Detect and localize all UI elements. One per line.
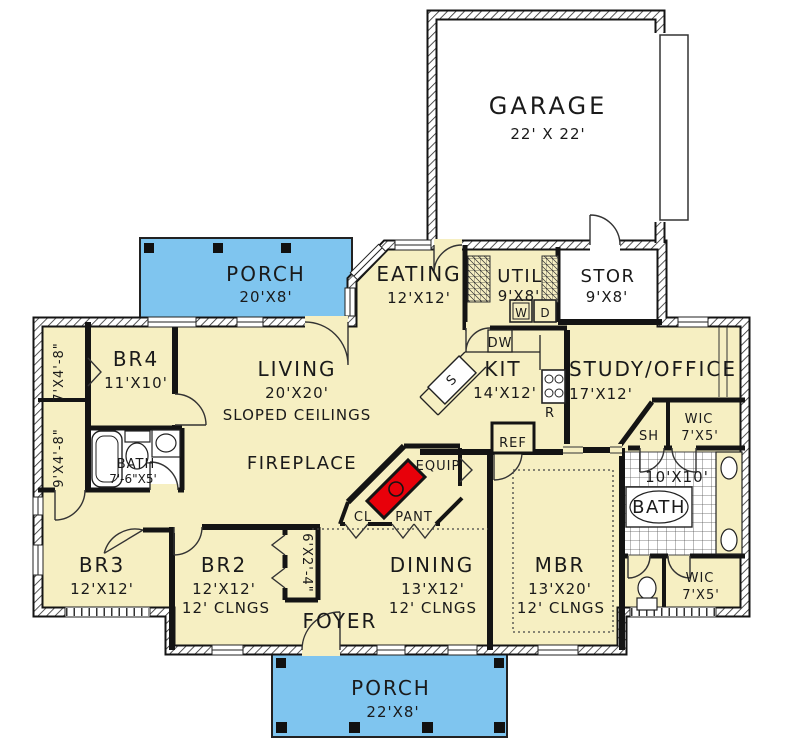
range-label: R xyxy=(545,406,555,421)
porch-post xyxy=(276,722,287,733)
room-dims-wic-upper: 7'X5' xyxy=(681,429,719,444)
sink xyxy=(721,529,737,551)
master-vanity xyxy=(716,452,742,554)
sink xyxy=(721,457,737,479)
porch-post xyxy=(422,722,433,733)
floor-plan: GARAGE 22' X 22' PORCH 20'X8' EATING 12'… xyxy=(0,0,800,754)
range xyxy=(542,370,565,403)
room-note-br2: 12' CLNGS xyxy=(182,599,270,617)
room-label-util: UTIL xyxy=(497,266,543,287)
closet-label: CL xyxy=(354,510,372,525)
room-label-kit: KIT xyxy=(484,357,521,381)
window xyxy=(237,317,263,327)
dryer-label: D xyxy=(540,306,549,320)
closet-br2-dims: 6'X2'-4" xyxy=(299,533,314,593)
closet-hall-upper-dims: 7'X4'-8" xyxy=(52,342,67,402)
equip-label: EQUIP xyxy=(416,459,461,474)
room-note-dining: 12' CLNGS xyxy=(389,599,477,617)
room-label-master-bath: BATH xyxy=(632,497,686,518)
util-shelves xyxy=(542,256,558,302)
washer-label: W xyxy=(515,306,527,320)
closet-hall-lower-dims: 9'X4'-8" xyxy=(52,428,67,488)
room-dims-dining: 13'X12' xyxy=(401,580,465,598)
toilet xyxy=(637,577,657,610)
window xyxy=(33,497,43,515)
room-label-stor: STOR xyxy=(580,266,635,287)
util-shelves xyxy=(468,256,490,302)
room-note-mbr: 12' CLNGS xyxy=(517,599,605,617)
room-label-hall-bath: BATH xyxy=(117,457,156,472)
room-dims-mbr: 13'X20' xyxy=(528,580,592,598)
room-label-study: STUDY/OFFICE xyxy=(569,357,737,381)
window xyxy=(678,317,708,327)
room-label-mbr: MBR xyxy=(535,553,586,577)
porch-post xyxy=(144,243,154,253)
garage-door xyxy=(652,33,688,222)
room-label-br3: BR3 xyxy=(79,553,125,577)
dishwasher-label: DW xyxy=(488,336,513,351)
room-label-br2: BR2 xyxy=(201,553,247,577)
room-dims-hall-bath: 7'-6"X5' xyxy=(109,472,157,486)
refrigerator-label: REF xyxy=(499,436,527,451)
room-label-foyer: FOYER xyxy=(303,609,378,633)
porch-post xyxy=(276,658,286,668)
room-note-living: SLOPED CEILINGS xyxy=(223,406,372,424)
window xyxy=(148,317,196,327)
room-dims-garage: 22' X 22' xyxy=(510,125,585,143)
shower-label: SH xyxy=(639,429,659,444)
room-label-garage: GARAGE xyxy=(489,92,607,120)
porch-post xyxy=(349,722,360,733)
window xyxy=(212,645,243,655)
floor-plan-page: GARAGE 22' X 22' PORCH 20'X8' EATING 12'… xyxy=(0,0,800,754)
porch-post xyxy=(494,658,504,668)
room-label-dining: DINING xyxy=(390,553,475,577)
fireplace-label: FIREPLACE xyxy=(247,453,357,474)
porch-post xyxy=(494,722,505,733)
room-label-br4: BR4 xyxy=(113,347,159,371)
window xyxy=(33,545,43,575)
room-dims-porch-top: 20'X8' xyxy=(239,288,292,306)
room-label-porch-top: PORCH xyxy=(226,262,306,286)
window xyxy=(345,288,355,316)
room-label-eating: EATING xyxy=(376,262,461,286)
room-label-living: LIVING xyxy=(257,357,336,381)
room-label-wic-upper: WIC xyxy=(685,412,714,427)
room-dims-eating: 12'X12' xyxy=(387,289,451,307)
room-label-wic-lower: WIC xyxy=(686,571,715,586)
window-band xyxy=(65,607,150,617)
room-dims-study: 17'X12' xyxy=(569,385,633,403)
room-dims-porch-bottom: 22'X8' xyxy=(366,703,419,721)
window xyxy=(538,645,578,655)
window xyxy=(448,645,477,655)
porch-post xyxy=(281,243,291,253)
sink xyxy=(152,430,180,457)
room-dims-wic-lower: 7'X5' xyxy=(682,588,720,603)
window xyxy=(377,645,405,655)
room-dims-kit: 14'X12' xyxy=(473,384,537,402)
pantry-label: PANT xyxy=(395,510,433,525)
room-label-porch-bottom: PORCH xyxy=(351,676,431,700)
room-dims-stor: 9'X8' xyxy=(586,288,629,306)
room-dims-util: 9'X8' xyxy=(498,287,541,305)
window xyxy=(395,240,431,250)
room-dims-living: 20'X20' xyxy=(265,384,329,402)
porch-post xyxy=(213,243,223,253)
room-dims-br2: 12'X12' xyxy=(192,580,256,598)
room-dims-master-bath: 10'X10' xyxy=(645,468,709,486)
room-dims-br3: 12'X12' xyxy=(70,580,134,598)
room-dims-br4: 11'X10' xyxy=(104,374,168,392)
